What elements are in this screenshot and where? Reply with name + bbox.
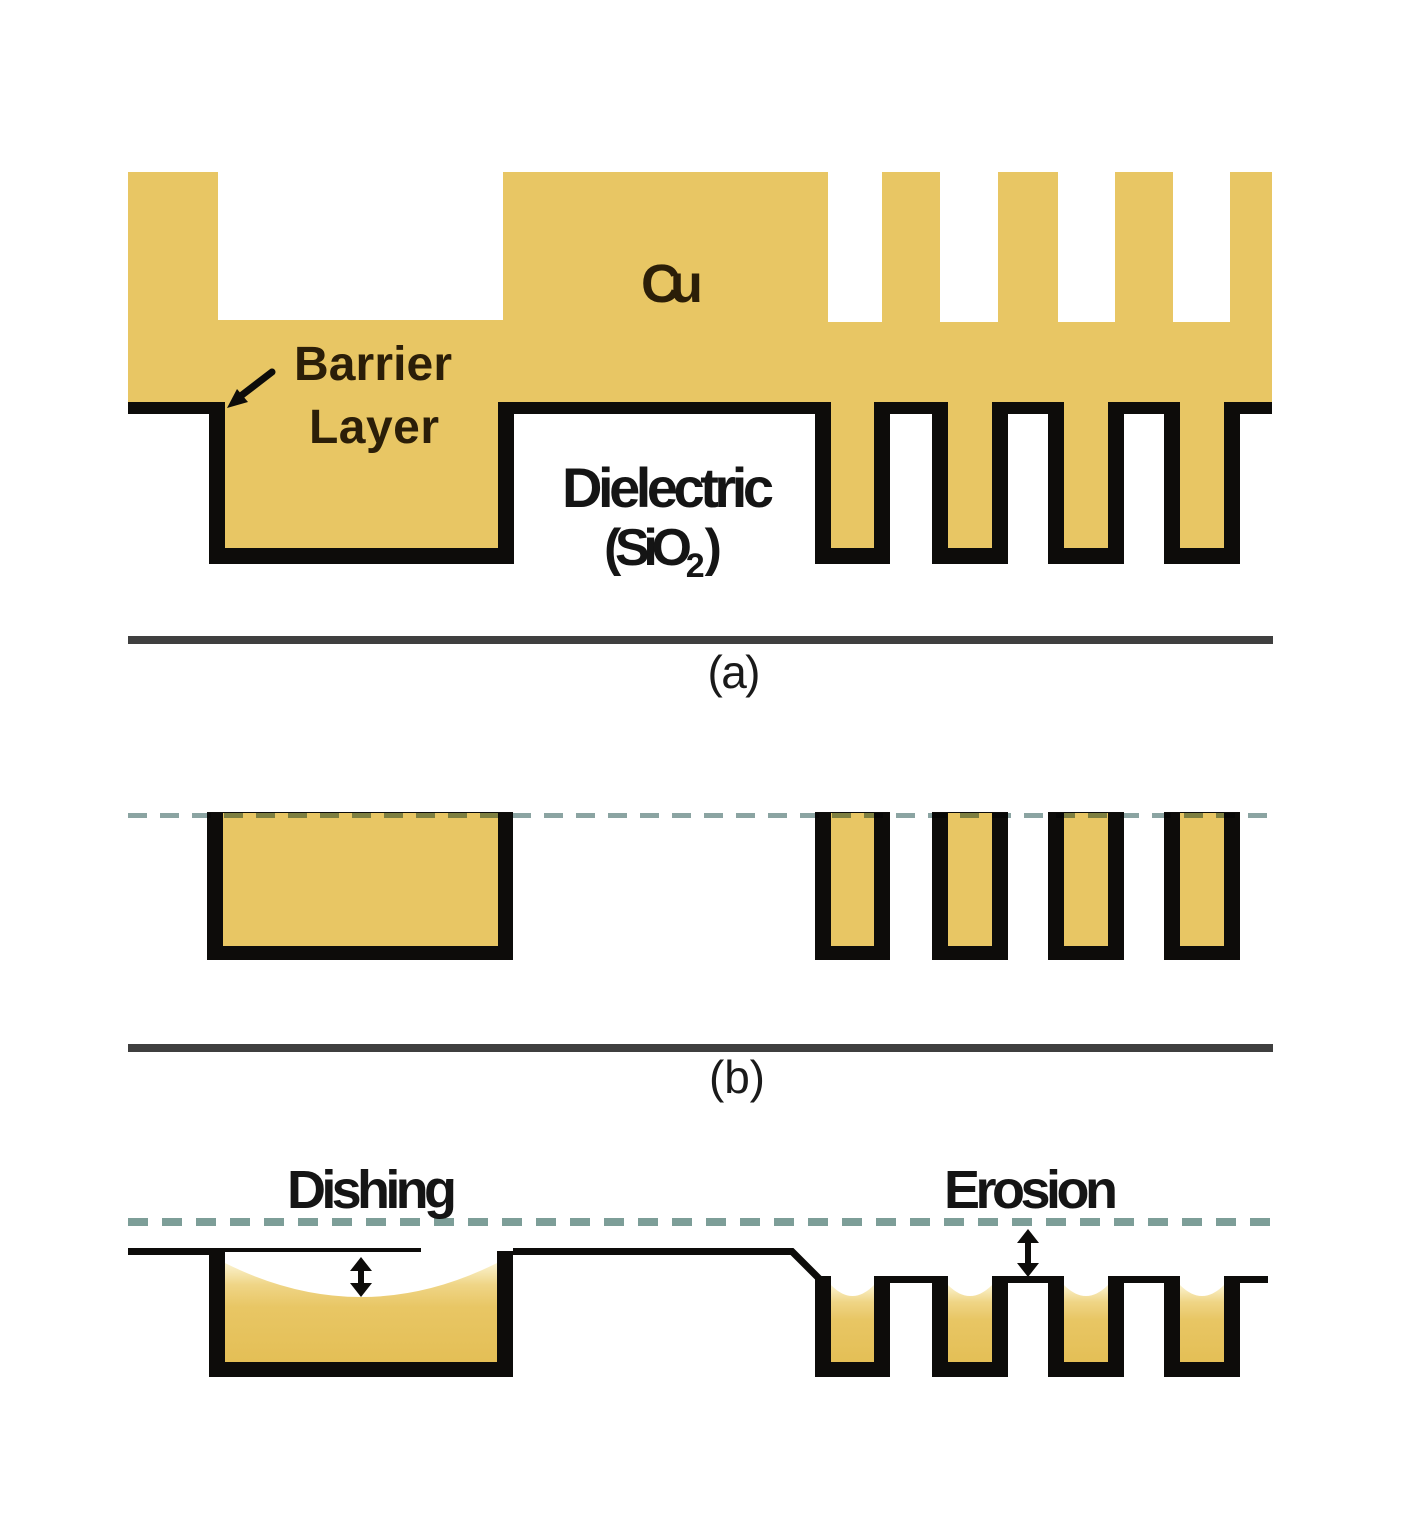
panel-c: Dishing Erosion — [128, 1160, 1273, 1377]
narrow-trench-2 — [932, 812, 1008, 960]
panel-a-label: (a) — [708, 646, 761, 698]
panel-b-divider — [128, 1044, 1273, 1052]
panel-b: (b) — [128, 812, 1273, 1103]
narrow-trench-1 — [815, 402, 890, 564]
erosion-label: Erosion — [944, 1160, 1118, 1220]
cu-label: Cu — [641, 254, 703, 314]
panel-b-label: (b) — [709, 1051, 765, 1103]
svg-text:Layer: Layer — [309, 401, 439, 454]
narrow-trench-array-b — [815, 812, 1240, 960]
dishing-label: Dishing — [287, 1160, 457, 1220]
dielectric-label: Dielectric (SiO2) — [562, 456, 774, 585]
panel-a-divider — [128, 636, 1273, 644]
svg-text:(SiO2): (SiO2) — [604, 519, 722, 585]
narrow-trench-3 — [1048, 402, 1124, 564]
svg-text:Dielectric: Dielectric — [562, 456, 774, 519]
narrow-trench-4 — [1164, 1276, 1240, 1377]
narrow-trench-array-a — [815, 402, 1240, 564]
narrow-trench-4 — [1164, 812, 1240, 960]
narrow-trench-3 — [1048, 1276, 1124, 1377]
narrow-trench-array-c — [815, 1276, 1240, 1377]
erosion-arrow-icon — [1017, 1229, 1039, 1277]
narrow-trench-2 — [932, 402, 1008, 564]
svg-text:Barrier: Barrier — [294, 338, 452, 391]
panel-a: Cu Barrier Layer Dielectric (SiO2) (a) — [128, 172, 1273, 698]
narrow-trench-1 — [815, 812, 890, 960]
narrow-trench-2 — [932, 1276, 1008, 1377]
narrow-trench-3 — [1048, 812, 1124, 960]
narrow-trench-1 — [815, 1276, 890, 1377]
cmp-dishing-erosion-diagram: Cu Barrier Layer Dielectric (SiO2) (a) — [0, 0, 1405, 1536]
narrow-trench-4 — [1164, 402, 1240, 564]
wide-trench-b — [207, 812, 513, 960]
